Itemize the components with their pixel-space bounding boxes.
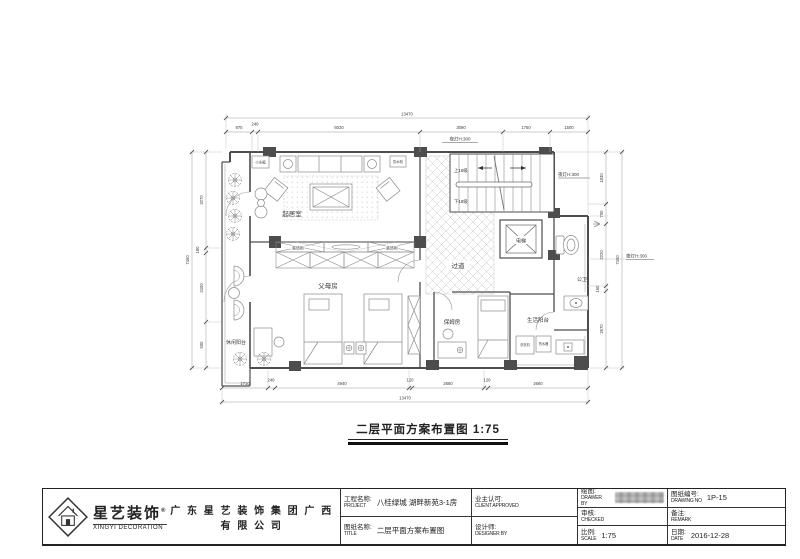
- checked-label-cn: 审核:: [581, 510, 604, 517]
- dim-right-total: 7450: [615, 255, 620, 265]
- remark-label-cn: 备注:: [671, 510, 691, 517]
- stairs-up-label: 上18级: [454, 167, 468, 174]
- brand: 星艺装饰® XINGYI DECORATION: [93, 502, 167, 531]
- remark-label-en: REMARK: [671, 517, 691, 523]
- dim-left-2: 2400: [199, 283, 204, 293]
- scale-label-en: SCALE: [581, 536, 596, 542]
- checked-row: 审核: CHECKED: [578, 507, 667, 526]
- house-icon: [59, 506, 78, 525]
- dim-bottom-total: 13470: [399, 396, 411, 401]
- client-label-cn: 业主认可:: [475, 496, 519, 503]
- corridor-label: 过道: [452, 261, 466, 270]
- cabinet-right-label: 装饰柜: [386, 245, 398, 251]
- logo-region: 星艺装饰® XINGYI DECORATION 广 东 星 艺 装 饰 集 团 …: [43, 489, 340, 544]
- drawing-no-label: 图纸编号: DRAWING NO: [671, 491, 702, 504]
- drawer-label: 绘图: DRAWER BY: [581, 489, 609, 507]
- staircase: 上18级 下18级: [450, 154, 554, 212]
- wardrobe-row: [276, 252, 414, 268]
- sheet-title-label-en: TITLE: [344, 531, 372, 537]
- night-light-right: 夜灯H:300: [558, 171, 580, 178]
- living-room-label: 起居室: [282, 209, 302, 218]
- checked-label-en: CHECKED: [581, 517, 604, 523]
- drawer-label-en: DRAWER BY: [581, 495, 609, 506]
- dim-top-4: 1750: [521, 125, 531, 130]
- client-label-en: CLIENT APPROVED: [475, 503, 519, 509]
- project-label-cn: 工程名称:: [344, 496, 372, 503]
- drawing-sheet: 上18级 下18级 电梯 公卫 小冰箱 饮水机 起居: [0, 0, 800, 559]
- designer-label-en: DESIGNER BY: [475, 531, 507, 537]
- dim-top-0: 970: [236, 125, 244, 130]
- dim-bottom-3: 120: [407, 378, 415, 383]
- scale-value: 1:75: [601, 531, 616, 540]
- project-row: 工程名称: PROJECT 八桂绿城 湖畔新苑3-1房: [341, 489, 471, 516]
- drawing-no-value: 1P-15: [707, 493, 727, 502]
- floor-plan: 上18级 下18级 电梯 公卫 小冰箱 饮水机 起居: [176, 96, 656, 416]
- bathroom: [536, 221, 600, 330]
- nanny-room-label: 保姆房: [444, 318, 461, 326]
- dim-right-3: 160: [595, 285, 600, 293]
- date-label-cn: 日期:: [671, 529, 686, 536]
- client-approved-label: 业主认可: CLIENT APPROVED: [475, 496, 519, 509]
- washer-label: 洗衣机: [520, 342, 530, 347]
- dim-right-4: 2670: [599, 324, 604, 334]
- project-value: 八桂绿城 湖畔新苑3-1房: [377, 497, 457, 508]
- remark-label: 备注: REMARK: [671, 510, 691, 523]
- sheet-title-label-cn: 图纸名称:: [344, 524, 372, 531]
- date-label: 日期: DATE: [671, 529, 686, 542]
- dim-top-3: 3090: [456, 125, 466, 130]
- dim-left-3: 500: [199, 341, 204, 349]
- bathroom-label: 公卫: [577, 277, 587, 283]
- designer-row: 设计师: DESIGNER BY: [472, 516, 577, 544]
- title-underline-thin: [348, 439, 508, 440]
- leisure-balcony-label: 休闲阳台: [226, 339, 246, 346]
- project-title-column: 工程名称: PROJECT 八桂绿城 湖畔新苑3-1房 图纸名称: TITLE …: [340, 489, 471, 544]
- date-label-en: DATE: [671, 536, 686, 542]
- company-name: 广 东 星 艺 装 饰 集 团 广 西 有 限 公 司: [167, 502, 336, 532]
- dim-bottom-2: 4940: [337, 381, 347, 386]
- sheet-title-row: 图纸名称: TITLE 二层平面方案布置图: [341, 516, 471, 544]
- brand-name-en: XINGYI DECORATION: [93, 524, 167, 531]
- drawer-checked-scale-column: 绘图: DRAWER BY 审核: CHECKED 比例: SCALE 1:75: [577, 489, 667, 544]
- dim-bottom-1: 240: [268, 378, 276, 383]
- night-light-side: 夜灯H:300: [626, 253, 648, 260]
- title-underline-thick: [348, 442, 508, 445]
- night-light-top: 夜灯H:300: [449, 136, 471, 143]
- scale-row: 比例: SCALE 1:75: [578, 525, 667, 544]
- dim-bottom-5: 120: [484, 378, 492, 383]
- plan-title-text: 二层平面方案布置图 1:75: [348, 421, 508, 437]
- title-block: 星艺装饰® XINGYI DECORATION 广 东 星 艺 装 饰 集 团 …: [42, 488, 786, 546]
- drawer-row: 绘图: DRAWER BY: [578, 489, 667, 507]
- drawer-name-redacted: [615, 492, 664, 503]
- scale-label: 比例: SCALE: [581, 529, 596, 542]
- stairs-down-label: 下18级: [454, 198, 468, 205]
- cabinet-left-label: 装饰柜: [292, 245, 304, 251]
- number-remark-date-column: 图纸编号: DRAWING NO 1P-15 备注: REMARK 日期: DA…: [667, 489, 785, 544]
- dim-bottom-6: 2680: [533, 381, 543, 386]
- client-approved-row: 业主认可: CLIENT APPROVED: [472, 489, 577, 516]
- xingyi-logo: [47, 496, 89, 538]
- brand-cn-text: 星艺装饰: [93, 505, 161, 522]
- date-row: 日期: DATE 2016-12-28: [668, 525, 785, 544]
- dim-top-1: 240: [252, 122, 260, 127]
- date-value: 2016-12-28: [691, 531, 729, 540]
- dim-bottom-4: 2660: [443, 381, 453, 386]
- water-dispenser-label: 饮水机: [393, 159, 404, 164]
- client-designer-column: 业主认可: CLIENT APPROVED 设计师: DESIGNER BY: [471, 489, 577, 544]
- dim-right-1: 700: [599, 210, 604, 218]
- dim-right-0: 1830: [599, 173, 604, 183]
- remark-row: 备注: REMARK: [668, 507, 785, 526]
- heater-label: 热水器: [539, 341, 549, 346]
- dim-bottom-0: 1710: [240, 381, 250, 386]
- dim-left-1: 180: [195, 246, 200, 254]
- project-label: 工程名称: PROJECT: [344, 496, 372, 509]
- service-balcony-label: 生活阳台: [527, 316, 550, 324]
- elevator-label: 电梯: [516, 238, 526, 245]
- sheet-title-label: 图纸名称: TITLE: [344, 524, 372, 537]
- parents-room-label: 父母房: [318, 281, 338, 290]
- project-label-en: PROJECT: [344, 503, 372, 509]
- dim-top-2: 6020: [334, 125, 344, 130]
- dim-right-2: 2220: [599, 250, 604, 260]
- dim-top-total: 13470: [401, 112, 413, 117]
- designer-label: 设计师: DESIGNER BY: [475, 524, 507, 537]
- drawing-no-label-en: DRAWING NO: [671, 498, 702, 504]
- sheet-title-value: 二层平面方案布置图: [377, 525, 445, 536]
- dim-top-5: 1500: [564, 125, 574, 130]
- dim-left-0: 3270: [199, 195, 204, 205]
- drawing-no-row: 图纸编号: DRAWING NO 1P-15: [668, 489, 785, 507]
- fridge-label: 小冰箱: [255, 160, 266, 165]
- elevator: 电梯: [500, 220, 542, 258]
- scale-label-cn: 比例:: [581, 529, 596, 536]
- plan-title: 二层平面方案布置图 1:75: [348, 421, 508, 445]
- drawing-no-label-cn: 图纸编号:: [671, 491, 702, 498]
- brand-name-cn: 星艺装饰®: [93, 502, 167, 523]
- dim-left-total: 7460: [185, 255, 190, 265]
- designer-label-cn: 设计师:: [475, 524, 507, 531]
- checked-label: 审核: CHECKED: [581, 510, 604, 523]
